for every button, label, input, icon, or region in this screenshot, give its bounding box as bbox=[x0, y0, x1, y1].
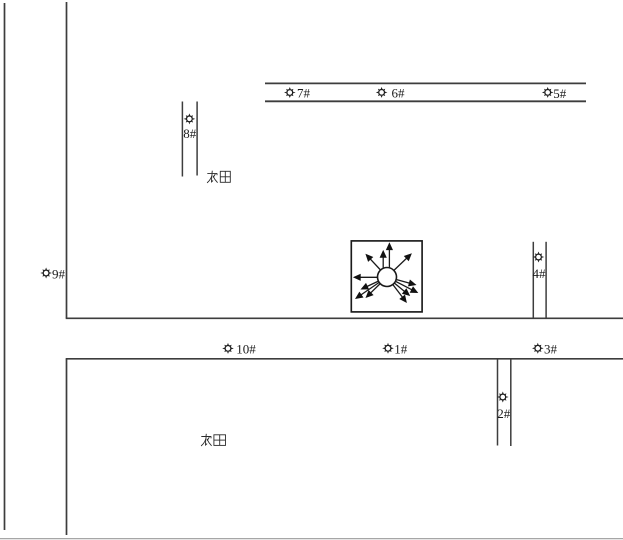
svg-text:6#: 6# bbox=[392, 86, 406, 101]
svg-text:5#: 5# bbox=[553, 86, 567, 101]
svg-text:4#: 4# bbox=[533, 266, 547, 281]
svg-text:10#: 10# bbox=[236, 341, 256, 356]
svg-text:8#: 8# bbox=[183, 126, 197, 141]
svg-text:3#: 3# bbox=[544, 341, 558, 356]
svg-text:7#: 7# bbox=[297, 86, 311, 101]
svg-text:1#: 1# bbox=[394, 341, 408, 356]
svg-text:9#: 9# bbox=[52, 266, 66, 281]
svg-text:2#: 2# bbox=[497, 406, 511, 421]
